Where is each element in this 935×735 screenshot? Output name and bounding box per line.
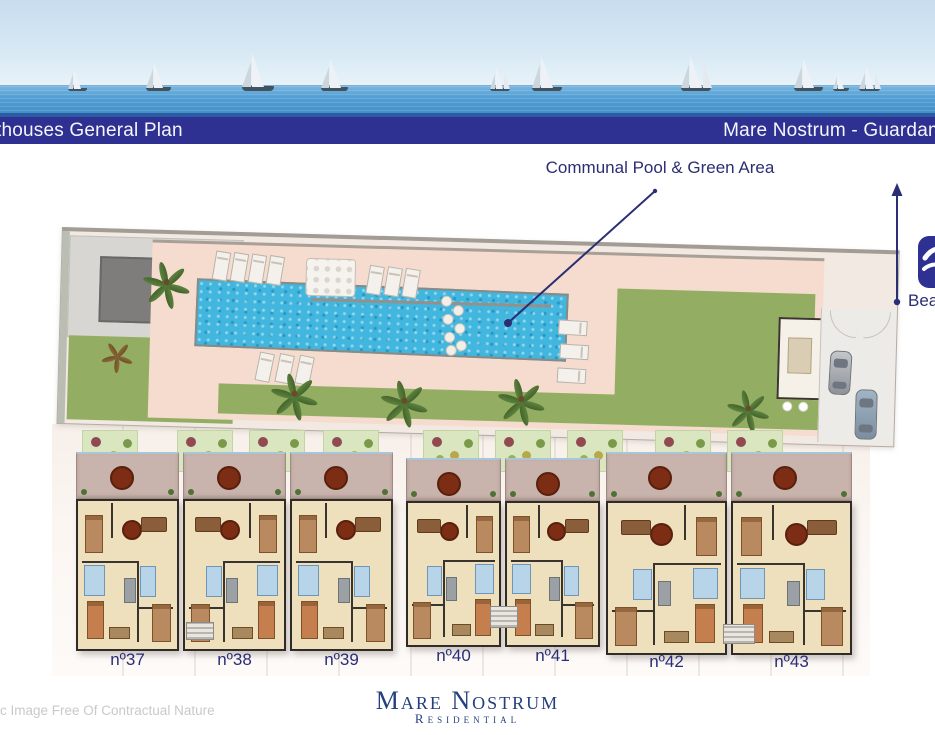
plant-icon — [91, 437, 101, 447]
sailboat-icon — [321, 59, 349, 91]
unit-label: nº37 — [76, 650, 179, 670]
main-sail — [838, 73, 844, 89]
gate-arc — [829, 310, 857, 338]
jib-sail — [859, 73, 865, 89]
main-sail — [154, 62, 163, 88]
pebble-mat — [305, 258, 356, 297]
unit-label: nº41 — [505, 646, 600, 666]
kitchen-icon — [658, 581, 671, 606]
sailboat-icon — [68, 69, 87, 91]
car-icon — [854, 389, 877, 440]
plant-icon — [411, 491, 417, 497]
bed-icon — [696, 517, 717, 556]
kitchen-icon — [549, 577, 560, 601]
jib-sail — [794, 66, 802, 88]
bathroom — [740, 568, 765, 599]
second-sail — [703, 61, 712, 88]
bed-icon — [301, 601, 318, 639]
plant-icon — [736, 437, 746, 447]
main-sail — [541, 56, 553, 88]
floorplan — [406, 501, 501, 647]
plant-icon — [536, 439, 545, 448]
interior-wall — [772, 505, 774, 540]
bed-icon — [575, 602, 593, 639]
plant-icon — [295, 489, 301, 495]
building-block-37-39: nº37 nº38 nº39 — [76, 452, 393, 651]
terrace — [76, 452, 179, 499]
building-block-40-41: nº40 nº41 — [406, 458, 600, 647]
plant-icon — [186, 437, 196, 447]
sailboat-icon — [490, 68, 510, 91]
bed-icon — [259, 515, 277, 553]
entrance-building — [776, 317, 824, 400]
sofa-icon — [417, 519, 441, 533]
terrace-table-icon — [773, 466, 797, 490]
penthouse-unit[interactable]: nº40 — [406, 458, 501, 647]
sofa-icon — [565, 519, 589, 533]
terrace-table-icon — [648, 466, 672, 490]
unit-label: nº39 — [290, 650, 393, 670]
main-sail — [74, 69, 81, 89]
interior-wall — [325, 503, 327, 538]
bathroom — [298, 565, 319, 596]
page-title: thouses General Plan — [0, 120, 183, 142]
bed-icon — [366, 604, 385, 642]
dining-table-icon — [440, 522, 459, 541]
terrace — [606, 452, 727, 501]
jib-sail — [68, 74, 73, 89]
floorplan — [290, 499, 393, 651]
dining-table-icon — [785, 523, 808, 546]
unit-label: nº43 — [731, 652, 852, 672]
plant-icon — [510, 491, 516, 497]
bathroom — [693, 568, 718, 599]
plant-icon — [589, 491, 595, 497]
plant-icon — [611, 491, 617, 497]
plant-icon — [608, 439, 617, 448]
dining-table-icon — [650, 523, 673, 546]
plant-icon — [123, 439, 132, 448]
sofa-icon — [807, 520, 837, 535]
unit-label: nº40 — [406, 646, 501, 666]
plant-icon — [464, 439, 473, 448]
sails — [794, 58, 823, 88]
plant-icon — [81, 489, 87, 495]
jib-sail — [321, 67, 329, 88]
penthouse-unit[interactable]: nº41 — [505, 458, 600, 647]
kitchen-icon — [226, 578, 238, 603]
sofa-icon — [621, 520, 651, 535]
bathroom — [257, 565, 278, 596]
jib-sail — [681, 64, 689, 88]
main-sail — [690, 56, 702, 88]
plant-icon — [490, 491, 496, 497]
bed-icon — [85, 515, 103, 553]
main-sail — [803, 58, 814, 88]
bathroom — [84, 565, 105, 596]
interior-wall — [443, 560, 445, 637]
wardrobe-icon — [535, 624, 554, 636]
plant-icon — [664, 437, 674, 447]
kitchen-icon — [787, 581, 800, 606]
wardrobe-icon — [232, 627, 253, 639]
terrace-table-icon — [217, 466, 241, 490]
bed-icon — [476, 516, 493, 553]
beach-wave-icon — [918, 236, 935, 288]
sails — [532, 56, 562, 88]
entrance-porch — [787, 337, 812, 374]
bathroom — [806, 569, 825, 600]
bed-icon — [513, 516, 530, 553]
terrace-table-icon — [437, 472, 461, 496]
terrace — [290, 452, 393, 499]
plant-icon — [168, 489, 174, 495]
wardrobe-icon — [452, 624, 471, 636]
bed-icon — [821, 607, 843, 646]
jib-sail — [146, 69, 153, 88]
jib-sail — [532, 64, 540, 88]
interior-wall — [249, 503, 251, 538]
penthouse-unit[interactable]: nº37 — [76, 452, 179, 651]
sailboat-icon — [859, 67, 881, 91]
interior-wall — [653, 563, 721, 565]
bathroom — [206, 566, 222, 597]
plant-icon — [364, 439, 373, 448]
beach-label: Bea — [908, 291, 935, 311]
plant-icon — [841, 491, 847, 497]
main-sail — [866, 67, 874, 89]
dining-table-icon — [547, 522, 566, 541]
kitchen-icon — [338, 578, 350, 603]
sailboat-icon — [532, 56, 562, 91]
bathroom — [564, 566, 579, 596]
terrace — [183, 452, 286, 499]
sofa-icon — [355, 517, 381, 532]
sailboat-icon — [681, 56, 712, 91]
general-plan-page: thouses General Plan Mare Nostrum - Guar… — [0, 0, 935, 735]
sails — [146, 62, 171, 88]
second-sail — [875, 71, 881, 89]
car-icon — [828, 350, 853, 395]
unit-label: nº42 — [606, 652, 727, 672]
interior-wall — [137, 561, 139, 642]
bed-icon — [152, 604, 171, 642]
interior-wall — [351, 561, 353, 642]
interior-wall — [296, 561, 353, 563]
stairs-icon — [490, 606, 518, 628]
sunbed-icon — [557, 367, 587, 384]
interior-wall — [223, 561, 225, 642]
penthouse-unit[interactable]: nº42 — [606, 452, 727, 655]
wardrobe-icon — [323, 627, 344, 639]
sofa-icon — [195, 517, 221, 532]
interior-wall — [111, 503, 113, 538]
sailboat-icon — [242, 53, 274, 91]
plant-icon — [275, 489, 281, 495]
terrace-table-icon — [536, 472, 560, 496]
plant-icon — [218, 439, 227, 448]
bed-icon — [87, 601, 104, 639]
penthouse-unit[interactable]: nº39 — [290, 452, 393, 651]
pool-annotation-label: Communal Pool & Green Area — [520, 158, 800, 178]
sea-panorama-image — [0, 0, 935, 117]
jib-sail — [490, 74, 495, 89]
dining-table-icon — [122, 520, 142, 540]
sails — [833, 73, 848, 89]
site-plan — [56, 227, 899, 447]
floorplan — [505, 501, 600, 647]
interior-wall — [82, 561, 139, 563]
wardrobe-icon — [769, 631, 794, 643]
plant-icon — [332, 437, 342, 447]
sails — [242, 53, 274, 87]
bed-icon — [741, 517, 762, 556]
interior-wall — [538, 505, 540, 538]
bathroom — [475, 564, 494, 594]
floorplan — [606, 501, 727, 655]
interior-wall — [443, 560, 495, 562]
terrace — [731, 452, 852, 501]
jib-sail — [833, 77, 837, 89]
bed-icon — [413, 602, 431, 639]
terrace-table-icon — [324, 466, 348, 490]
bathroom — [512, 564, 531, 594]
bed-icon — [475, 599, 491, 636]
plant-icon — [696, 439, 705, 448]
terrace-table-icon — [110, 466, 134, 490]
sails — [681, 56, 712, 88]
interior-wall — [511, 560, 563, 562]
second-sail — [504, 72, 510, 89]
sunbed-icon — [558, 319, 588, 336]
plant-icon — [576, 437, 586, 447]
kitchen-icon — [446, 577, 457, 601]
stairs-icon — [186, 622, 214, 640]
unit-label: nº38 — [183, 650, 286, 670]
plant-icon — [290, 439, 299, 448]
main-sail — [496, 68, 503, 89]
title-banner: thouses General Plan Mare Nostrum - Guar… — [0, 117, 935, 144]
disclaimer-text: ic Image Free Of Contractual Nature — [0, 703, 215, 718]
interior-wall — [653, 563, 655, 645]
wardrobe-icon — [109, 627, 130, 639]
plant-icon — [382, 489, 388, 495]
kitchen-icon — [124, 578, 136, 603]
terrace — [406, 458, 501, 501]
dining-table-icon — [220, 520, 240, 540]
project-title: Mare Nostrum - Guardam — [723, 120, 935, 142]
interior-wall — [561, 560, 563, 637]
bathroom — [633, 569, 652, 600]
terrace — [505, 458, 600, 501]
plant-icon — [768, 439, 777, 448]
main-sail — [252, 53, 264, 87]
plant-icon — [188, 489, 194, 495]
sailboat-icon — [794, 58, 823, 91]
sails — [859, 67, 881, 89]
wardrobe-icon — [664, 631, 689, 643]
interior-wall — [737, 563, 805, 565]
sailboat-icon — [833, 73, 848, 91]
plant-icon — [716, 491, 722, 497]
building-block-42-43: nº42 nº43 — [606, 452, 852, 655]
sails — [490, 68, 510, 89]
plant-icon — [736, 491, 742, 497]
dining-table-icon — [336, 520, 356, 540]
bathroom — [140, 566, 156, 597]
interior-wall — [803, 563, 805, 645]
interior-wall — [466, 505, 468, 538]
plant-icon — [504, 437, 514, 447]
sails — [68, 69, 87, 89]
arrow-up-icon — [892, 183, 903, 196]
jib-sail — [242, 62, 251, 87]
sofa-icon — [141, 517, 167, 532]
stairs-icon — [723, 624, 755, 644]
bed-icon — [695, 604, 715, 643]
interior-wall — [223, 561, 280, 563]
bathroom — [354, 566, 370, 597]
sunbed-icon — [559, 343, 589, 360]
gate-arc — [863, 311, 891, 339]
bathroom — [427, 566, 442, 596]
plant-icon — [432, 437, 442, 447]
main-sail — [330, 59, 341, 88]
sails — [321, 59, 349, 88]
floorplan — [76, 499, 179, 651]
plant-icon — [258, 437, 268, 447]
bed-icon — [258, 601, 275, 639]
interior-wall — [684, 505, 686, 540]
bed-icon — [299, 515, 317, 553]
sailboat-icon — [146, 62, 171, 91]
bed-icon — [615, 607, 637, 646]
